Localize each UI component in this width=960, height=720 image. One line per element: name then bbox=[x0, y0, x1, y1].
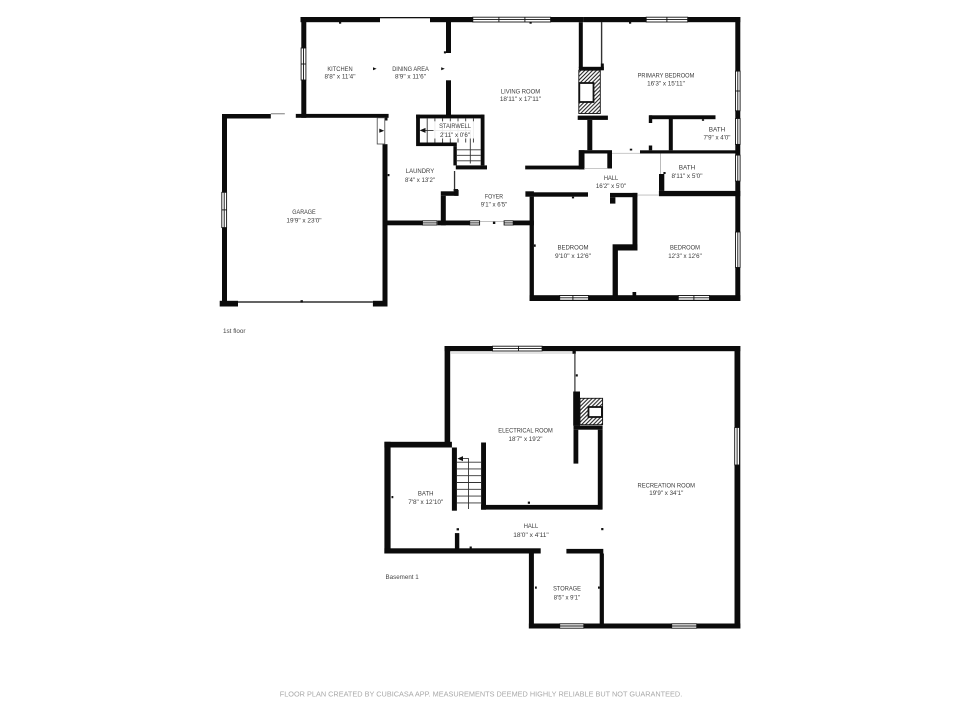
svg-text:BATH: BATH bbox=[679, 165, 696, 172]
svg-text:ELECTRICAL ROOM: ELECTRICAL ROOM bbox=[498, 427, 553, 434]
svg-text:DINING AREA: DINING AREA bbox=[392, 66, 429, 73]
svg-text:8'5" x 9'1": 8'5" x 9'1" bbox=[554, 595, 580, 602]
svg-text:8'9" x 11'6": 8'9" x 11'6" bbox=[395, 74, 426, 81]
svg-text:BATH: BATH bbox=[709, 127, 726, 134]
svg-text:FOYER: FOYER bbox=[485, 193, 504, 200]
svg-text:8'11" x 5'0": 8'11" x 5'0" bbox=[672, 173, 703, 180]
svg-text:16'2" x 5'0": 16'2" x 5'0" bbox=[596, 183, 626, 190]
svg-text:18'11" x 17'11": 18'11" x 17'11" bbox=[500, 96, 541, 103]
svg-text:18'0" x 4'11": 18'0" x 4'11" bbox=[513, 532, 549, 539]
svg-text:2'11" x 0'6": 2'11" x 0'6" bbox=[440, 132, 470, 139]
svg-text:19'9" x 23'0": 19'9" x 23'0" bbox=[286, 217, 321, 224]
svg-text:18'7" x 19'2": 18'7" x 19'2" bbox=[509, 436, 543, 443]
svg-text:BATH: BATH bbox=[418, 491, 434, 498]
svg-text:BEDROOM: BEDROOM bbox=[670, 245, 700, 252]
svg-text:Basement 1: Basement 1 bbox=[386, 574, 419, 581]
svg-text:7'9" x 4'0": 7'9" x 4'0" bbox=[704, 135, 731, 142]
svg-text:KITCHEN: KITCHEN bbox=[327, 66, 353, 73]
svg-text:LIVING ROOM: LIVING ROOM bbox=[501, 89, 540, 96]
svg-text:8'8" x 11'4": 8'8" x 11'4" bbox=[325, 74, 356, 81]
svg-text:12'3" x 12'6": 12'3" x 12'6" bbox=[668, 253, 702, 260]
svg-text:FLOOR PLAN CREATED BY CUBICASA: FLOOR PLAN CREATED BY CUBICASA APP. MEAS… bbox=[280, 692, 683, 699]
svg-text:8'4" x 13'2": 8'4" x 13'2" bbox=[405, 177, 435, 184]
svg-text:1st floor: 1st floor bbox=[223, 328, 246, 335]
svg-text:LAUNDRY: LAUNDRY bbox=[406, 168, 435, 175]
svg-text:7'8" x 12'10": 7'8" x 12'10" bbox=[408, 499, 443, 506]
svg-text:GARAGE: GARAGE bbox=[292, 209, 315, 216]
svg-text:STORAGE: STORAGE bbox=[553, 586, 581, 593]
svg-text:9'1" x 6'5": 9'1" x 6'5" bbox=[481, 201, 508, 208]
svg-text:BEDROOM: BEDROOM bbox=[557, 245, 588, 252]
svg-text:STAIRWELL: STAIRWELL bbox=[439, 123, 471, 130]
svg-text:HALL: HALL bbox=[604, 175, 619, 182]
svg-text:19'9" x 34'1": 19'9" x 34'1" bbox=[649, 490, 683, 497]
svg-text:16'3" x 15'11": 16'3" x 15'11" bbox=[647, 81, 685, 88]
svg-text:RECREATION ROOM: RECREATION ROOM bbox=[638, 482, 696, 489]
svg-text:HALL: HALL bbox=[524, 523, 539, 530]
svg-text:9'10" x 12'6": 9'10" x 12'6" bbox=[555, 253, 591, 260]
svg-text:PRIMARY BEDROOM: PRIMARY BEDROOM bbox=[638, 73, 695, 80]
